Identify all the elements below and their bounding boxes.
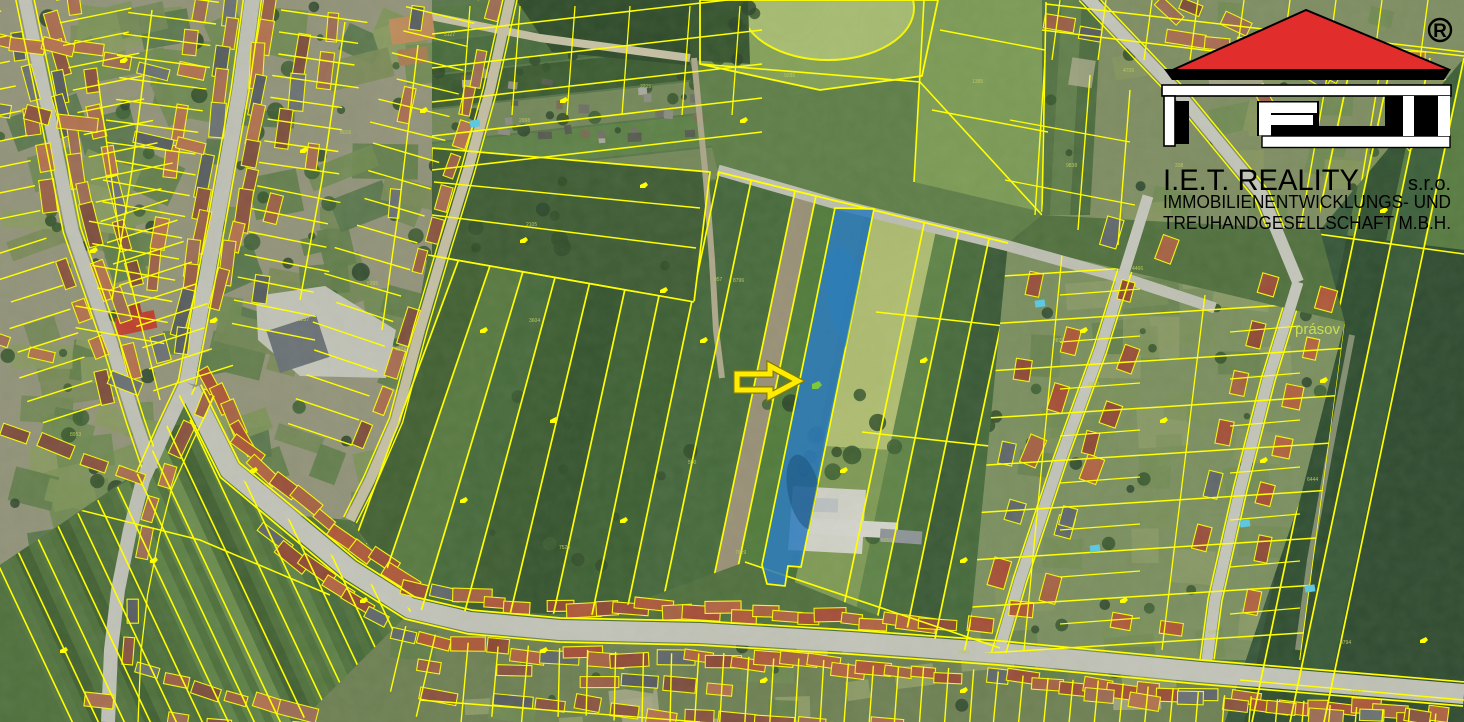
svg-text:1385: 1385 [972, 79, 983, 85]
svg-text:7909: 7909 [735, 550, 746, 556]
svg-text:8809: 8809 [1088, 382, 1099, 388]
svg-text:9286: 9286 [784, 73, 795, 79]
svg-text:IMMOBILIENENTWICKLUNGS- UND: IMMOBILIENENTWICKLUNGS- UND [1163, 192, 1451, 212]
svg-text:7523: 7523 [559, 545, 570, 551]
svg-text:8953: 8953 [70, 432, 81, 438]
svg-text:8016: 8016 [340, 130, 351, 136]
svg-text:2205: 2205 [640, 84, 651, 90]
svg-text:3604: 3604 [529, 318, 540, 324]
svg-text:TREUHANDGESELLSCHAFT M.B.H.: TREUHANDGESELLSCHAFT M.B.H. [1163, 213, 1451, 233]
svg-text:2400: 2400 [958, 650, 969, 656]
svg-text:4984: 4984 [1208, 630, 1219, 636]
svg-text:1663: 1663 [1351, 689, 1362, 695]
svg-text:6237: 6237 [298, 317, 309, 323]
svg-text:6444: 6444 [1307, 477, 1318, 483]
svg-text:500: 500 [688, 460, 697, 466]
svg-text:4624: 4624 [395, 347, 406, 353]
svg-text:9838: 9838 [1066, 163, 1077, 169]
svg-text:2998: 2998 [519, 118, 530, 124]
svg-text:2878: 2878 [1053, 338, 1064, 344]
svg-text:R: R [1433, 21, 1447, 42]
svg-text:957: 957 [714, 277, 723, 283]
svg-text:5395: 5395 [367, 281, 378, 287]
svg-text:8796: 8796 [733, 278, 744, 284]
svg-text:4706: 4706 [1123, 68, 1134, 74]
svg-text:4466: 4466 [1132, 266, 1143, 272]
svg-text:prásov: prásov [1295, 321, 1341, 338]
svg-text:2105: 2105 [526, 222, 537, 228]
svg-text:5010: 5010 [881, 538, 892, 544]
svg-text:5127: 5127 [444, 32, 455, 38]
svg-text:8794: 8794 [1340, 640, 1351, 646]
